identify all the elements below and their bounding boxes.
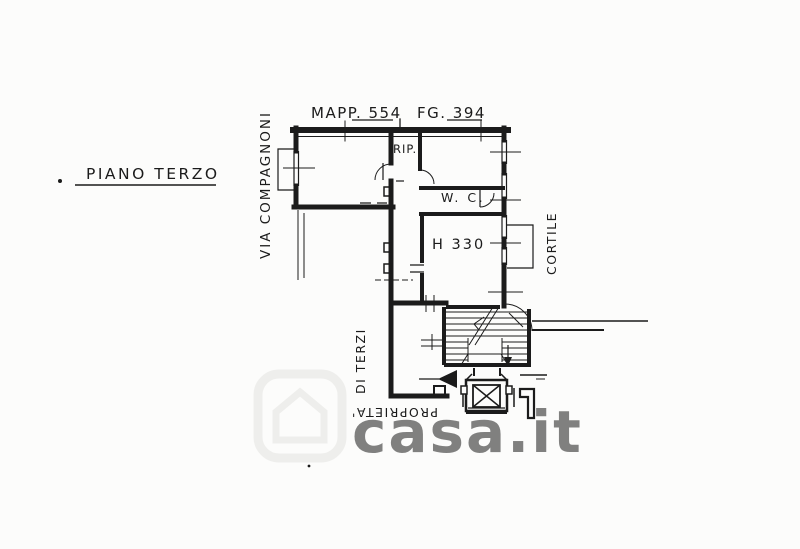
cadastral-map-ref: MAPP. 554 xyxy=(311,104,402,122)
room-label-storage: RIP. xyxy=(393,142,417,156)
boundary-label-di-terzi: DI TERZI xyxy=(353,328,368,394)
street-label: VIA COMPAGNONI xyxy=(258,111,274,259)
boundary-label-proprieta: PROPRIETA' xyxy=(350,405,438,420)
cadastral-sheet-ref: FG. 394 xyxy=(417,104,486,122)
watermark-house-icon xyxy=(258,374,342,458)
floor-plan-page: casa.it xyxy=(0,0,800,549)
left-balcony xyxy=(278,149,296,190)
corridor-lines xyxy=(520,321,648,379)
room-label-wc: W. C. xyxy=(441,190,485,205)
page-title: PIANO TERZO xyxy=(86,165,220,183)
staircase xyxy=(444,307,531,366)
room-height-label: H 330 xyxy=(432,237,485,253)
right-balcony xyxy=(507,225,533,268)
courtyard-label: CORTILE xyxy=(544,212,559,275)
floor-plan-drawing: casa.it xyxy=(0,0,800,549)
